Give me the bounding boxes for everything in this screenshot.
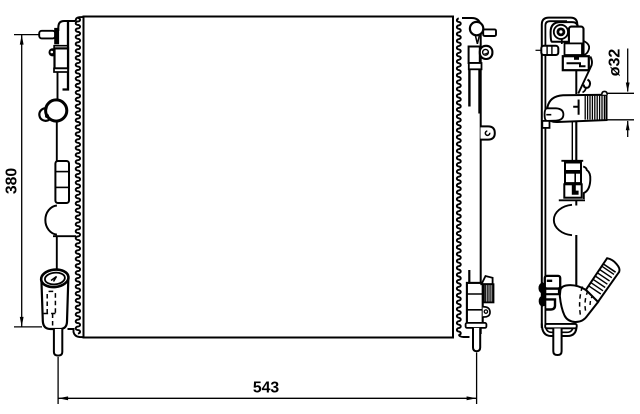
svg-text:380: 380	[4, 168, 21, 195]
svg-text:543: 543	[253, 380, 280, 397]
svg-text:ø32: ø32	[607, 49, 624, 77]
